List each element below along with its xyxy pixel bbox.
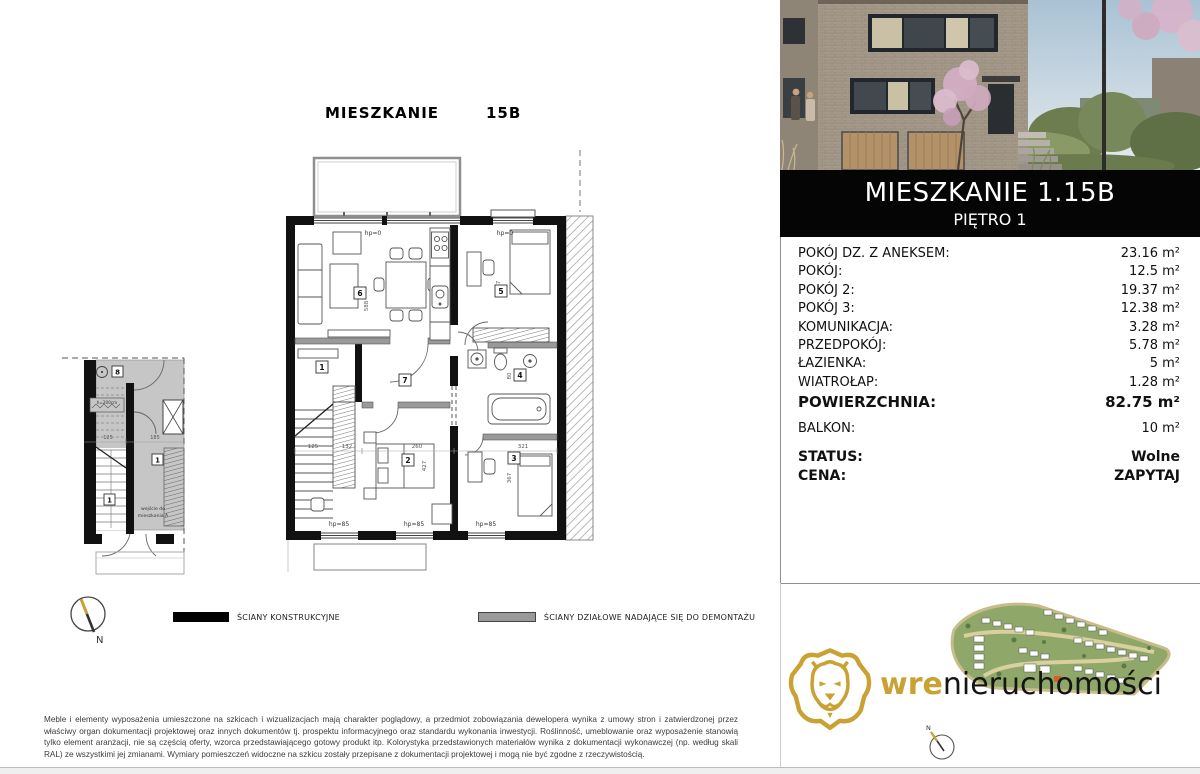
svg-text:N: N [96, 635, 103, 646]
svg-text:7: 7 [402, 376, 407, 385]
furniture-room2 [364, 432, 452, 524]
page-bottom-strip [0, 768, 1200, 774]
status-label: STATUS: [798, 449, 863, 465]
furniture-living [298, 232, 438, 337]
total-area-row: POWIERZCHNIA:82.75 m² [798, 393, 1180, 416]
detail-row: POKÓJ:12.5 m² [798, 264, 1180, 282]
svg-text:h=200cm: h=200cm [97, 400, 118, 405]
room-label-3: 3 [508, 452, 520, 464]
compass-icon: N [60, 590, 120, 648]
balcony-value: 10 m² [1141, 421, 1180, 436]
svg-text:hp=85: hp=85 [476, 521, 496, 528]
balcony-label: BALKON: [798, 421, 855, 436]
svg-text:1: 1 [107, 497, 112, 505]
detail-label: ŁAZIENKA: [798, 356, 866, 371]
compass-icon-small: N [916, 720, 964, 766]
svg-text:5: 5 [498, 287, 503, 296]
total-area-value: 82.75 m² [1105, 393, 1180, 411]
panel-left-divider [780, 237, 781, 583]
page-title-unit: 15B [486, 104, 521, 122]
detail-label: POKÓJ 2: [798, 283, 855, 298]
svg-text:321: 321 [518, 444, 529, 450]
brand-wordmark: wrenieruchomości [880, 668, 1162, 702]
price-label: CENA: [798, 468, 846, 484]
legend-label-structural: ŚCIANY KONSTRUKCYJNE [237, 613, 340, 622]
unit-title: MIESZKANIE 1.15B [780, 170, 1200, 208]
balcony-top [314, 158, 460, 216]
side-hatch-strip [566, 216, 593, 540]
unit-details: POKÓJ DZ. Z ANEKSEM:23.16 m² POKÓJ:12.5 … [798, 246, 1180, 487]
svg-text:1: 1 [319, 363, 324, 372]
detail-label: POKÓJ 3: [798, 301, 855, 316]
building-photo [780, 0, 1200, 170]
listing-card: MIESZKANIE 15B [0, 0, 1200, 774]
room-label-1: 1 [316, 361, 328, 373]
legend-swatch-partition [478, 612, 536, 622]
price-row: CENA:ZAPYTAJ [798, 468, 1180, 487]
room-label-7: 7 [399, 374, 411, 386]
legend-swatch-structural [173, 612, 229, 622]
furniture-kitchen [430, 228, 450, 340]
svg-text:4: 4 [517, 371, 522, 380]
detail-value: 12.38 m² [1121, 301, 1180, 316]
detail-label: KOMUNIKACJA: [798, 320, 893, 335]
svg-text:8: 8 [115, 369, 120, 377]
svg-text:hp=0: hp=0 [497, 230, 514, 237]
window-band-upper [868, 14, 998, 52]
brand-wre: wre [880, 667, 943, 702]
door-canopy [982, 76, 1020, 82]
room-label-1b: 1 [152, 454, 163, 465]
furniture-hall-stairs [295, 349, 355, 518]
detail-row: POKÓJ DZ. Z ANEKSEM:23.16 m² [798, 246, 1180, 264]
svg-text:wejście do: wejście do [141, 505, 165, 512]
unit-floor: PIĘTRO 1 [780, 210, 1200, 229]
svg-text:427: 427 [422, 460, 428, 471]
room-label-8: 8 [112, 366, 123, 377]
svg-text:185: 185 [150, 435, 160, 441]
footer-left-divider [780, 583, 781, 767]
status-badge: Wolne [1131, 449, 1180, 465]
entry-door [988, 84, 1014, 134]
detail-label: PRZEDPOKÓJ: [798, 338, 886, 353]
floor-plan-main: 125 132 260 321 588 357 427 367 80 hp=0 … [278, 136, 598, 576]
unit-header: MIESZKANIE 1.15B PIĘTRO 1 [780, 170, 1200, 237]
floor-plan-entrance: h=200cm 125 185 [56, 352, 191, 577]
price-value: ZAPYTAJ [1114, 468, 1180, 484]
balcony-below [288, 540, 426, 572]
total-area-label: POWIERZCHNIA: [798, 393, 936, 411]
svg-text:mieszkania A: mieszkania A [138, 513, 169, 519]
detail-value: 19.37 m² [1121, 283, 1180, 298]
svg-text:588: 588 [364, 300, 370, 311]
svg-text:80: 80 [507, 372, 513, 379]
svg-text:hp=85: hp=85 [329, 521, 349, 528]
detail-value: 1.28 m² [1129, 375, 1180, 390]
windows [314, 210, 535, 538]
svg-text:N: N [926, 724, 931, 732]
brand-nieruchomosci: nieruchomości [943, 667, 1162, 702]
panel-bottom-divider [780, 583, 1200, 584]
furniture-room5 [467, 230, 550, 342]
svg-text:3: 3 [511, 454, 516, 463]
room-label-1c: 1 [104, 494, 115, 505]
svg-text:125: 125 [103, 435, 113, 441]
page-title: MIESZKANIE [325, 104, 439, 122]
detail-value: 3.28 m² [1129, 320, 1180, 335]
shaft-box [163, 400, 183, 434]
room-label-4: 4 [514, 369, 526, 381]
svg-text:hp=0: hp=0 [365, 230, 382, 237]
room-label-6: 6 [354, 287, 366, 299]
svg-text:1: 1 [155, 457, 160, 465]
detail-value: 5.78 m² [1129, 338, 1180, 353]
detail-row: POKÓJ 2:19.37 m² [798, 283, 1180, 301]
detail-label: POKÓJ DZ. Z ANEKSEM: [798, 246, 950, 261]
svg-text:hp=85: hp=85 [404, 521, 424, 528]
svg-text:125: 125 [308, 444, 319, 450]
svg-text:2: 2 [405, 456, 410, 465]
lamp-post [1102, 0, 1106, 170]
detail-value: 12.5 m² [1129, 264, 1180, 279]
svg-text:132: 132 [342, 444, 353, 450]
legend-label-partition: ŚCIANY DZIAŁOWE NADAJĄCE SIĘ DO DEMONTAŻ… [544, 613, 755, 622]
detail-value: 23.16 m² [1121, 246, 1180, 261]
detail-value: 5 m² [1150, 356, 1180, 371]
room-label-5: 5 [495, 285, 507, 297]
window-band-lower [850, 78, 935, 114]
stair-handrail: h=200cm [90, 398, 124, 412]
svg-text:367: 367 [507, 472, 513, 483]
furniture-bathroom [468, 348, 550, 424]
room-label-2: 2 [402, 454, 414, 466]
detail-row: PRZEDPOKÓJ:5.78 m² [798, 338, 1180, 356]
legend: ŚCIANY KONSTRUKCYJNE ŚCIANY DZIAŁOWE NAD… [173, 612, 885, 622]
svg-text:6: 6 [357, 289, 362, 298]
detail-row: ŁAZIENKA:5 m² [798, 356, 1180, 374]
disclaimer-text: Meble i elementy wyposażenia umieszczone… [44, 714, 738, 760]
balcony-row: BALKON:10 m² [798, 421, 1180, 439]
svg-text:260: 260 [412, 444, 423, 450]
detail-row: KOMUNIKACJA:3.28 m² [798, 320, 1180, 338]
detail-label: POKÓJ: [798, 264, 842, 279]
status-row: STATUS:Wolne [798, 449, 1180, 468]
detail-row: POKÓJ 3:12.38 m² [798, 301, 1180, 319]
detail-row: WIATROŁAP:1.28 m² [798, 375, 1180, 393]
lion-logo-icon [786, 646, 874, 734]
main-building [780, 0, 1062, 170]
detail-label: WIATROŁAP: [798, 375, 878, 390]
